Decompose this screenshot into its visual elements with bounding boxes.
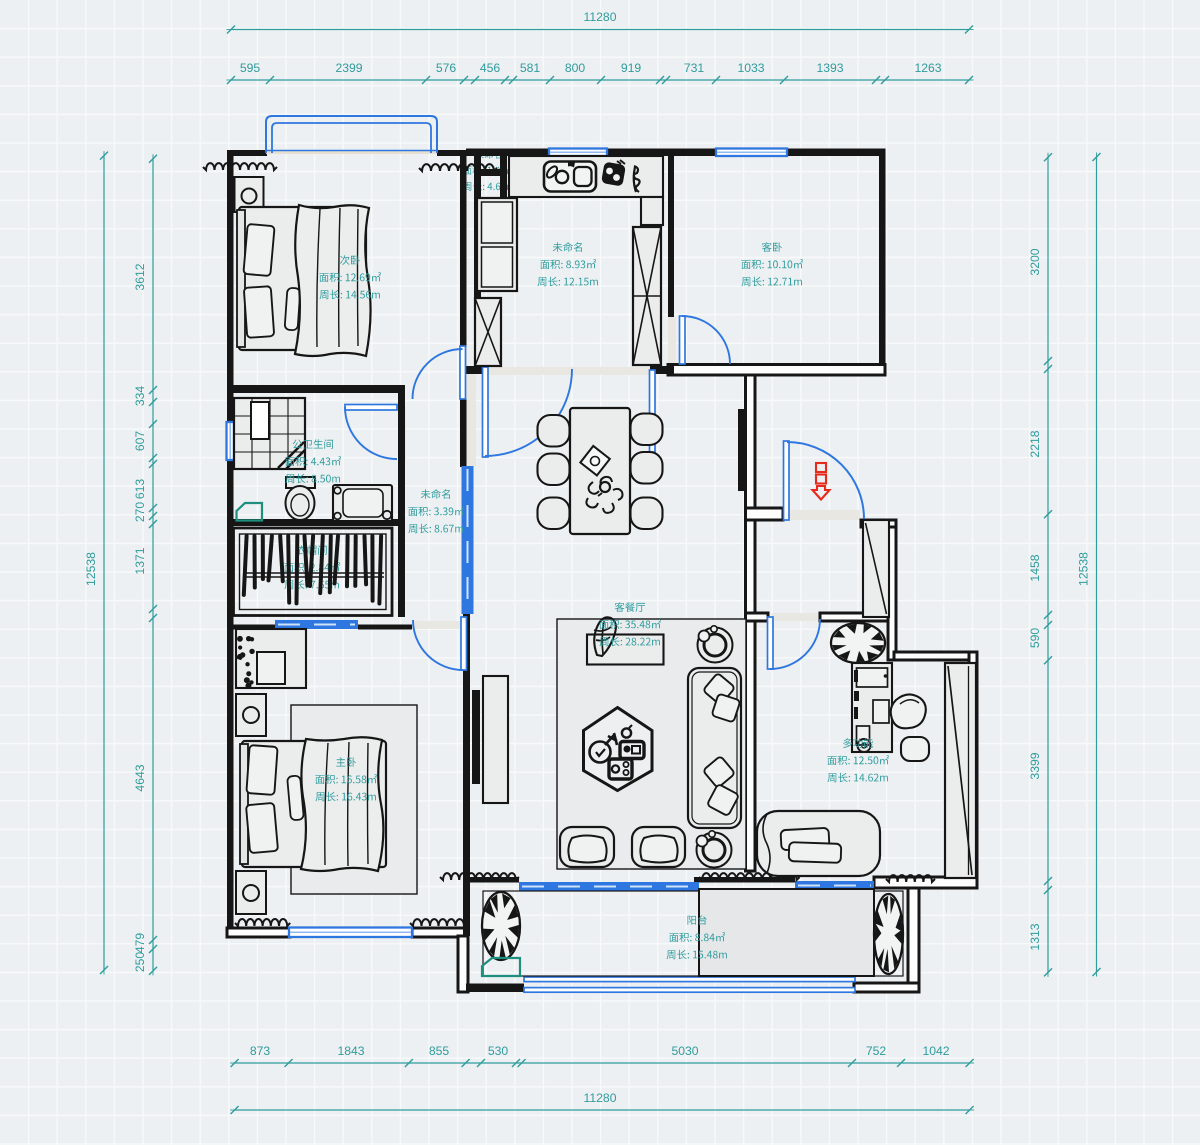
svg-text:2399: 2399 <box>335 61 362 75</box>
svg-text:12538: 12538 <box>1077 552 1091 586</box>
svg-text:1263: 1263 <box>914 61 941 75</box>
svg-text:3612: 3612 <box>133 263 147 290</box>
svg-text:11280: 11280 <box>584 10 617 24</box>
svg-text:334: 334 <box>133 386 147 407</box>
svg-text:3200: 3200 <box>1028 248 1042 275</box>
svg-text:12538: 12538 <box>84 552 98 586</box>
svg-text:270: 270 <box>133 502 147 523</box>
svg-text:752: 752 <box>866 1044 887 1058</box>
svg-text:3399: 3399 <box>1028 752 1042 779</box>
svg-text:479: 479 <box>133 933 147 954</box>
svg-text:1371: 1371 <box>133 547 147 574</box>
svg-text:1042: 1042 <box>922 1044 949 1058</box>
svg-text:5030: 5030 <box>671 1044 698 1058</box>
svg-text:4643: 4643 <box>133 764 147 791</box>
svg-text:581: 581 <box>520 61 541 75</box>
svg-text:530: 530 <box>488 1044 509 1058</box>
svg-text:576: 576 <box>436 61 457 75</box>
svg-text:1843: 1843 <box>337 1044 364 1058</box>
svg-text:11280: 11280 <box>584 1091 617 1105</box>
svg-text:1393: 1393 <box>816 61 843 75</box>
svg-text:873: 873 <box>250 1044 271 1058</box>
svg-text:1458: 1458 <box>1028 554 1042 581</box>
svg-text:590: 590 <box>1028 628 1042 649</box>
svg-text:613: 613 <box>133 479 147 500</box>
svg-text:731: 731 <box>684 61 705 75</box>
svg-text:250: 250 <box>133 952 147 973</box>
svg-text:2218: 2218 <box>1028 430 1042 457</box>
svg-text:595: 595 <box>240 61 261 75</box>
svg-text:607: 607 <box>133 431 147 452</box>
svg-text:855: 855 <box>429 1044 450 1058</box>
svg-text:1313: 1313 <box>1028 923 1042 950</box>
svg-text:800: 800 <box>565 61 586 75</box>
svg-text:919: 919 <box>621 61 642 75</box>
svg-text:1033: 1033 <box>737 61 764 75</box>
svg-text:456: 456 <box>480 61 501 75</box>
